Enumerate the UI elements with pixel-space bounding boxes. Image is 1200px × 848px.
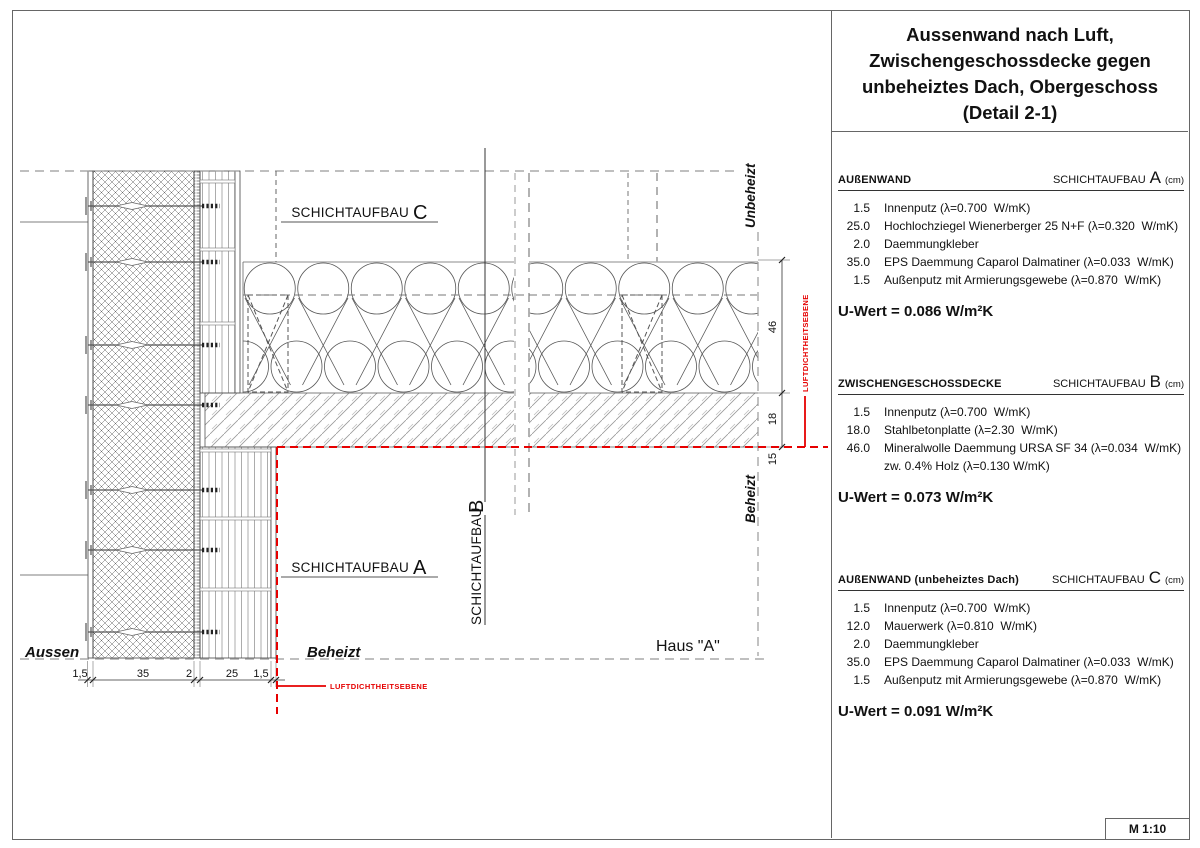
layer-thickness: 35.0 xyxy=(838,253,870,271)
layer-row: 1.5Innenputz (λ=0.700 W/mK) xyxy=(838,599,1184,617)
layer-thickness: 1.5 xyxy=(838,199,870,217)
layer-row: 2.0Daemmungkleber xyxy=(838,635,1184,653)
layer-thickness: 2.0 xyxy=(838,635,870,653)
section-c-letter: C xyxy=(1149,568,1161,588)
layer-row: 12.0Mauerwerk (λ=0.810 W/mK) xyxy=(838,617,1184,635)
layer-row: 35.0EPS Daemmung Caparol Dalmatiner (λ=0… xyxy=(838,653,1184,671)
section-c-unit: (cm) xyxy=(1165,575,1184,586)
section-c-name: AUßENWAND (unbeheiztes Dach) xyxy=(838,574,1019,586)
layer-thickness: 1.5 xyxy=(838,671,870,689)
layer-desc: Innenputz (λ=0.700 W/mK) xyxy=(884,199,1030,217)
section-aussenwand-c: AUßENWAND (unbeheiztes Dach) SCHICHTAUFB… xyxy=(838,568,1184,720)
layer-desc: Außenputz mit Armierungsgewebe (λ=0.870 … xyxy=(884,671,1161,689)
layer-row: 1.5Innenputz (λ=0.700 W/mK) xyxy=(838,403,1184,421)
info-panel: Aussenwand nach Luft, Zwischengeschossde… xyxy=(832,10,1188,838)
layer-desc: EPS Daemmung Caparol Dalmatiner (λ=0.033… xyxy=(884,653,1174,671)
layer-desc: zw. 0.4% Holz (λ=0.130 W/mK) xyxy=(884,457,1050,475)
u-value-c: U-Wert = 0.091 W/m²K xyxy=(838,703,1184,720)
layer-thickness: 2.0 xyxy=(838,235,870,253)
layer-thickness: 1.5 xyxy=(838,271,870,289)
layer-desc: Daemmungkleber xyxy=(884,635,979,653)
layer-desc: Mauerwerk (λ=0.810 W/mK) xyxy=(884,617,1037,635)
layer-desc: Innenputz (λ=0.700 W/mK) xyxy=(884,599,1030,617)
section-a-name: AUßENWAND xyxy=(838,174,911,186)
section-a-unit: (cm) xyxy=(1165,175,1184,186)
title-line-1: Aussenwand nach Luft, xyxy=(836,22,1184,48)
layer-row: 1.5Innenputz (λ=0.700 W/mK) xyxy=(838,199,1184,217)
section-b-rule xyxy=(838,394,1184,395)
section-aussenwand-a: AUßENWAND SCHICHTAUFBAU A (cm) 1.5Innenp… xyxy=(838,168,1184,320)
layer-row: 1.5Außenputz mit Armierungsgewebe (λ=0.8… xyxy=(838,271,1184,289)
scale-label: M 1:10 xyxy=(1129,822,1166,836)
layer-row: zw. 0.4% Holz (λ=0.130 W/mK) xyxy=(838,457,1184,475)
title-line-2: Zwischengeschossdecke gegen xyxy=(836,48,1184,74)
section-b-name: ZWISCHENGESCHOSSDECKE xyxy=(838,378,1002,390)
section-b-schichtaufbau-word: SCHICHTAUFBAU xyxy=(1053,378,1146,390)
layer-desc: EPS Daemmung Caparol Dalmatiner (λ=0.033… xyxy=(884,253,1174,271)
layer-row: 25.0Hochlochziegel Wienerberger 25 N+F (… xyxy=(838,217,1184,235)
detail-sheet: 1,5 35 2 25 1,5 46 18 15 xyxy=(0,0,1200,848)
section-c-rule xyxy=(838,590,1184,591)
layer-thickness: 12.0 xyxy=(838,617,870,635)
u-value-a: U-Wert = 0.086 W/m²K xyxy=(838,303,1184,320)
layer-thickness: 35.0 xyxy=(838,653,870,671)
section-a-schichtaufbau-word: SCHICHTAUFBAU xyxy=(1053,174,1146,186)
drawing-title: Aussenwand nach Luft, Zwischengeschossde… xyxy=(836,22,1184,126)
section-a-rule xyxy=(838,190,1184,191)
layer-thickness: 1.5 xyxy=(838,599,870,617)
layer-row: 35.0EPS Daemmung Caparol Dalmatiner (λ=0… xyxy=(838,253,1184,271)
layer-row: 46.0Mineralwolle Daemmung URSA SF 34 (λ=… xyxy=(838,439,1184,457)
layer-row: 18.0Stahlbetonplatte (λ=2.30 W/mK) xyxy=(838,421,1184,439)
layer-thickness: 25.0 xyxy=(838,217,870,235)
u-value-b: U-Wert = 0.073 W/m²K xyxy=(838,489,1184,506)
layer-desc: Daemmungkleber xyxy=(884,235,979,253)
title-line-3: unbeheiztes Dach, Obergeschoss xyxy=(836,74,1184,100)
layer-desc: Mineralwolle Daemmung URSA SF 34 (λ=0.03… xyxy=(884,439,1181,457)
scale-box: M 1:10 xyxy=(1105,818,1189,839)
layer-row: 1.5Außenputz mit Armierungsgewebe (λ=0.8… xyxy=(838,671,1184,689)
layer-row: 2.0Daemmungkleber xyxy=(838,235,1184,253)
section-c-schichtaufbau-word: SCHICHTAUFBAU xyxy=(1052,574,1145,586)
layer-thickness: 1.5 xyxy=(838,403,870,421)
section-a-letter: A xyxy=(1150,168,1161,188)
layer-desc: Außenputz mit Armierungsgewebe (λ=0.870 … xyxy=(884,271,1161,289)
layer-desc: Hochlochziegel Wienerberger 25 N+F (λ=0.… xyxy=(884,217,1178,235)
title-line-4: (Detail 2-1) xyxy=(836,100,1184,126)
layer-desc: Stahlbetonplatte (λ=2.30 W/mK) xyxy=(884,421,1058,439)
section-b-unit: (cm) xyxy=(1165,379,1184,390)
layer-thickness xyxy=(838,457,870,475)
layer-thickness: 46.0 xyxy=(838,439,870,457)
layer-desc: Innenputz (λ=0.700 W/mK) xyxy=(884,403,1030,421)
section-zwischengeschossdecke-b: ZWISCHENGESCHOSSDECKE SCHICHTAUFBAU B (c… xyxy=(838,372,1184,506)
layer-thickness: 18.0 xyxy=(838,421,870,439)
section-b-letter: B xyxy=(1150,372,1161,392)
